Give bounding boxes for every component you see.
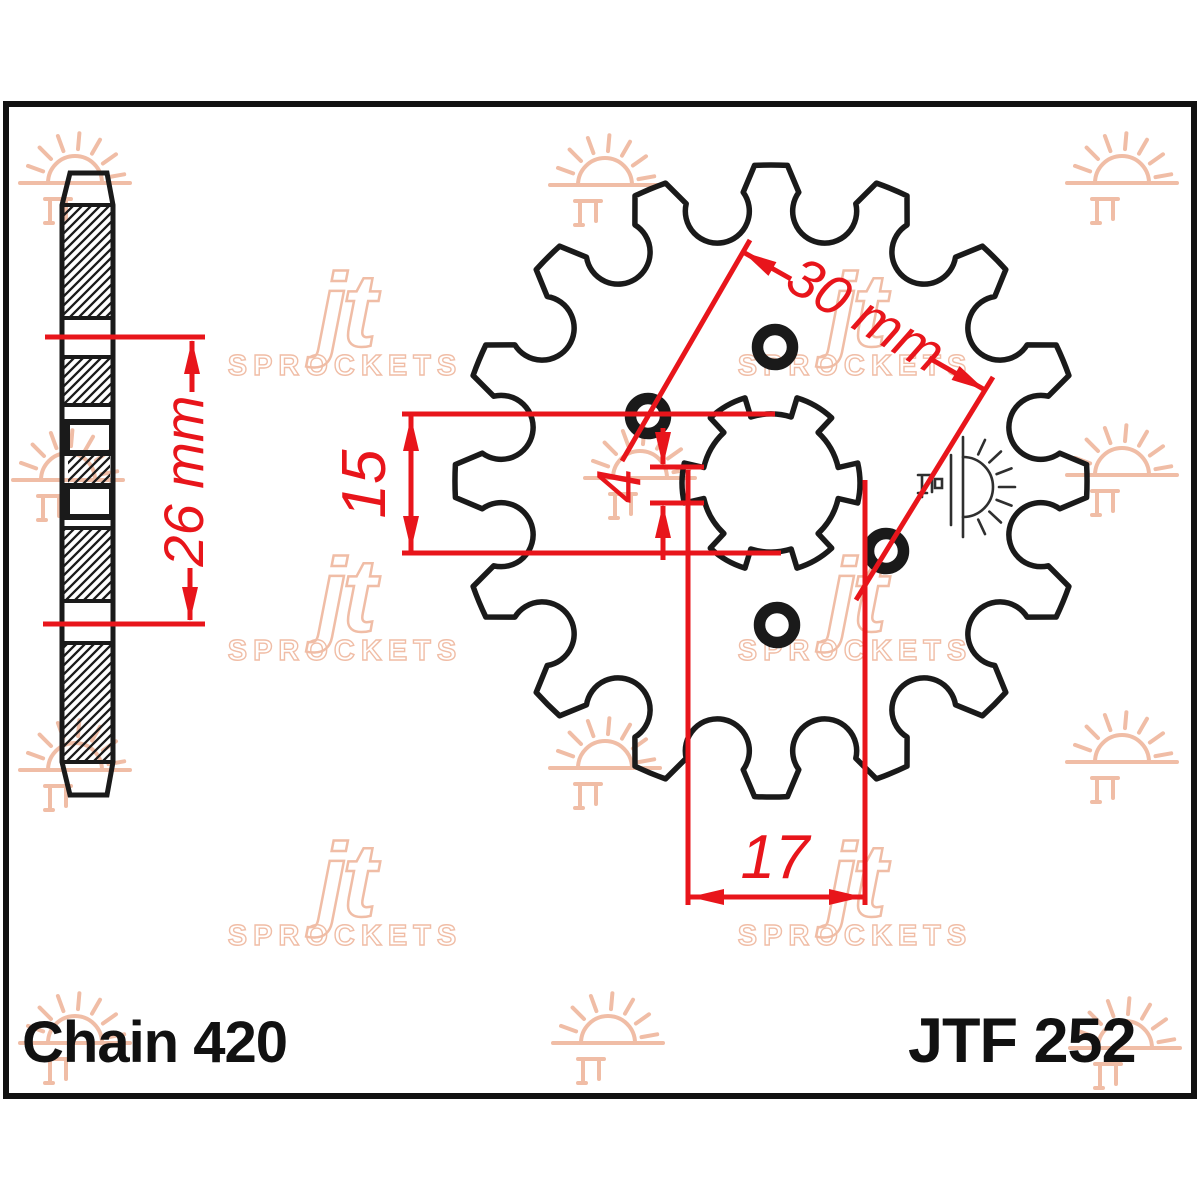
sprocket-technical-drawing: jtSPROCKETSjtSPROCKETSjtSPROCKETSjtSPROC…	[0, 0, 1200, 1200]
dimension-arrowhead	[182, 587, 198, 621]
hatch-region	[62, 359, 113, 403]
jt-logo-stamp	[918, 437, 1015, 537]
dimension-line	[856, 377, 993, 600]
dimension-arrowhead	[403, 417, 419, 451]
dimension-arrowhead	[690, 889, 724, 905]
hub-spline-slot	[67, 486, 112, 517]
bolt-hole	[758, 330, 793, 365]
hatch-region	[62, 530, 113, 599]
dimension-arrowhead	[655, 504, 671, 538]
hatch-region	[62, 645, 113, 760]
sun-watermark	[1067, 133, 1177, 223]
dimension-arrowhead	[403, 516, 419, 550]
sprockets-watermark-text: SPROCKETS	[228, 920, 462, 952]
sprocket-side-view	[62, 173, 113, 795]
drawing-frame	[6, 104, 1194, 1096]
sprockets-watermark-text: SPROCKETS	[228, 635, 462, 667]
sun-watermark	[1067, 712, 1177, 802]
bolt-hole	[760, 608, 795, 643]
hatch-region	[68, 456, 110, 485]
chain-size-label: Chain 420	[22, 1014, 287, 1072]
part-number-label: JTF 252	[908, 1010, 1136, 1073]
dimension-shaft-bore: 17	[695, 827, 855, 891]
dimension-overall-width: 26 mm	[156, 381, 224, 581]
sun-watermark	[550, 135, 660, 225]
sprockets-watermark-text: SPROCKETS	[738, 920, 972, 952]
dimension-bore-inner: 15	[334, 414, 398, 554]
hatch-region	[62, 207, 113, 316]
sprockets-watermark-text: SPROCKETS	[228, 350, 462, 382]
dimension-arrowhead	[184, 340, 200, 374]
dimension-spline-width: 4	[589, 451, 653, 521]
sun-watermark	[553, 993, 663, 1083]
drawing-layer	[6, 104, 1194, 1096]
